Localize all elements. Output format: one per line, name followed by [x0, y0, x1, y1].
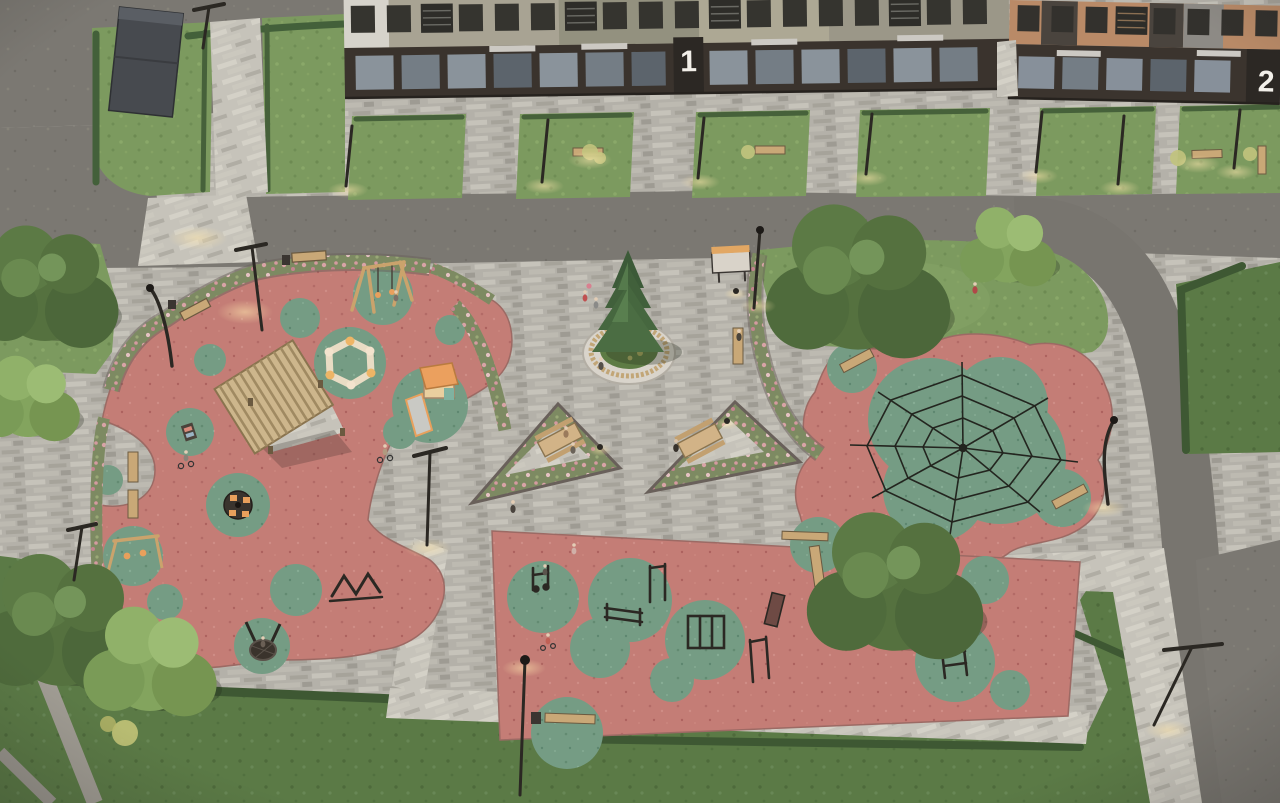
vignette-overlay: [0, 0, 1280, 803]
courtyard-scene: 1 2: [0, 0, 1280, 803]
courtyard-render: 1 2: [0, 0, 1280, 803]
